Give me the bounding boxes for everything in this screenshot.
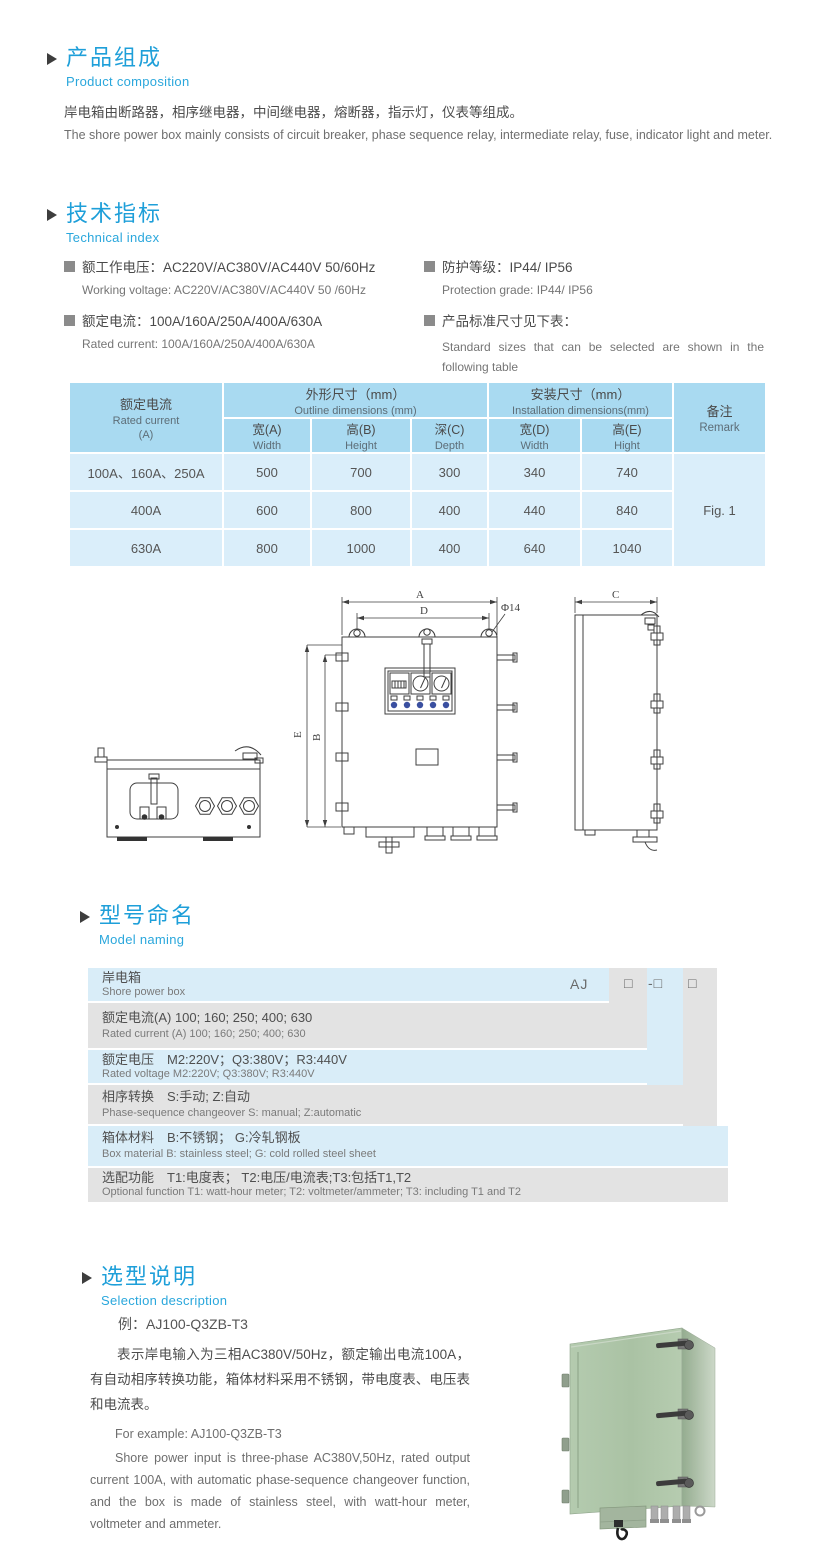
header-hight-e: 高(E)Hight bbox=[582, 419, 672, 452]
front-view bbox=[336, 629, 517, 853]
header-zh: 高(B) bbox=[312, 419, 410, 438]
side-view bbox=[575, 611, 663, 850]
bullet-square-icon bbox=[64, 261, 75, 272]
cell: 1040 bbox=[582, 530, 672, 566]
model-row-rated-current: 额定电流(A) 100; 160; 250; 400; 630 Rated cu… bbox=[88, 1003, 647, 1048]
header-en: Width bbox=[489, 440, 580, 452]
header-installation-dimensions: 安装尺寸（mm） Installation dimensions(mm) bbox=[489, 383, 672, 417]
table-row: 100A、160A、250A 500 700 300 340 740 Fig. … bbox=[70, 454, 765, 490]
header-en: Installation dimensions(mm) bbox=[489, 405, 672, 417]
header-zh: 安装尺寸（mm） bbox=[489, 384, 672, 403]
product-photo bbox=[545, 1292, 825, 1562]
header-en: Remark bbox=[674, 422, 765, 434]
standard-sizes-table: 额定电流 Rated current (A) 外形尺寸（mm） Outline … bbox=[68, 381, 767, 568]
datasheet-page: 产品组成 Product composition 岸电箱由断路器，相序继电器，中… bbox=[0, 0, 830, 1568]
cell: 600 bbox=[224, 492, 310, 528]
cell: 800 bbox=[224, 530, 310, 566]
cell: 300 bbox=[412, 454, 487, 490]
header-depth-c: 深(C)Depth bbox=[412, 419, 487, 452]
cell: 740 bbox=[582, 454, 672, 490]
section-technical-header: 技术指标 Technical index bbox=[47, 201, 162, 245]
dim-label-c: C bbox=[612, 589, 619, 601]
cell: 640 bbox=[489, 530, 580, 566]
composition-body-en: The shore power box mainly consists of c… bbox=[64, 128, 772, 142]
dim-label-e: E bbox=[292, 731, 304, 738]
model-code-prefix: AJ bbox=[570, 976, 588, 992]
model-row-optional-function: 选配功能 T1:电度表； T2:电压/电流表;T3:包括T1,T2 Option… bbox=[88, 1168, 728, 1202]
cell: 700 bbox=[312, 454, 410, 490]
row-en: Optional function T1: watt-hour meter; T… bbox=[88, 1186, 728, 1199]
row-en: Phase-sequence changeover S: manual; Z:a… bbox=[88, 1105, 717, 1120]
selection-text-block: 例：AJ100-Q3ZB-T3 表示岸电输入为三相AC380V/50Hz，额定输… bbox=[90, 1314, 470, 1535]
model-naming-diagram: 岸电箱 Shore power box 额定电流(A) 100; 160; 25… bbox=[88, 968, 728, 1204]
header-outline-dimensions: 外形尺寸（mm） Outline dimensions (mm) bbox=[224, 383, 487, 417]
selection-body-zh: 表示岸电输入为三相AC380V/50Hz，额定输出电流100A，有自动相序转换功… bbox=[90, 1342, 470, 1417]
header-en: Width bbox=[224, 440, 310, 452]
model-naming-title-en: Model naming bbox=[99, 932, 195, 947]
row-en: Box material B: stainless steel; G: cold… bbox=[88, 1146, 728, 1161]
model-code-current-box: □ bbox=[624, 975, 633, 991]
cell: 630A bbox=[70, 530, 222, 566]
row-en: Shore power box bbox=[88, 986, 609, 999]
section-arrow-icon bbox=[47, 53, 57, 65]
cell: 400 bbox=[412, 492, 487, 528]
spec-item: 额工作电压：AC220V/AC380V/AC440V 50/60Hz bbox=[64, 256, 375, 283]
section-composition-header: 产品组成 Product composition bbox=[47, 45, 189, 89]
header-en: Height bbox=[312, 440, 410, 452]
row-en: Rated voltage M2:220V; Q3:380V; R3:440V bbox=[88, 1068, 683, 1081]
spec-zh-text: 防护等级：IP44/ IP56 bbox=[442, 260, 573, 275]
header-en: Depth bbox=[412, 440, 487, 452]
composition-body-zh: 岸电箱由断路器，相序继电器，中间继电器，熔断器，指示灯，仪表等组成。 bbox=[64, 101, 523, 121]
model-code-option-box: □ bbox=[688, 975, 697, 991]
technical-title-en: Technical index bbox=[66, 230, 162, 245]
header-en: Rated current bbox=[70, 415, 222, 427]
row-zh: 箱体材料 B:不锈钢； G:冷轧钢板 bbox=[88, 1126, 728, 1146]
selection-example-zh: 例：AJ100-Q3ZB-T3 bbox=[90, 1314, 470, 1334]
table-row: 630A 800 1000 400 640 1040 bbox=[70, 530, 765, 566]
selection-example-en: For example: AJ100-Q3ZB-T3 bbox=[90, 1427, 470, 1441]
cell: 400A bbox=[70, 492, 222, 528]
selection-title-en: Selection description bbox=[101, 1293, 227, 1308]
spec-zh-text: 额工作电压：AC220V/AC380V/AC440V 50/60Hz bbox=[82, 260, 375, 275]
cell: 800 bbox=[312, 492, 410, 528]
header-zh: 备注 bbox=[674, 401, 765, 420]
model-code-voltage-box: -□ bbox=[648, 975, 663, 991]
header-zh: 外形尺寸（mm） bbox=[224, 384, 487, 403]
dim-label-b: B bbox=[311, 734, 323, 741]
dim-label-d: D bbox=[420, 605, 428, 617]
selection-title-zh: 选型说明 bbox=[101, 1264, 227, 1290]
cell: 840 bbox=[582, 492, 672, 528]
section-technical-titles: 技术指标 Technical index bbox=[66, 201, 162, 245]
cell: 100A、160A、250A bbox=[70, 454, 222, 490]
indicator-lights bbox=[391, 696, 449, 708]
dimension-lines: A D Φ14 E B C bbox=[292, 589, 657, 827]
spec-item: 产品标准尺寸见下表： bbox=[424, 310, 764, 337]
header-height-b: 高(B)Height bbox=[312, 419, 410, 452]
spec-en-text: Protection grade: IP44/ IP56 bbox=[424, 283, 764, 310]
spec-item: 额定电流：100A/160A/250A/400A/630A bbox=[64, 310, 375, 337]
row-zh: 额定电压 M2:220V；Q3:380V；R3:440V bbox=[88, 1050, 683, 1068]
technical-title-zh: 技术指标 bbox=[66, 201, 162, 227]
section-model-naming-header: 型号命名 Model naming bbox=[80, 903, 195, 947]
header-zh: 宽(A) bbox=[224, 419, 310, 438]
model-row-shore-power-box: 岸电箱 Shore power box bbox=[88, 968, 609, 1001]
section-composition-titles: 产品组成 Product composition bbox=[66, 45, 189, 89]
dim-label-dia14: Φ14 bbox=[501, 602, 521, 614]
selection-body-en: Shore power input is three-phase AC380V,… bbox=[90, 1447, 470, 1535]
header-width-a: 宽(A)Width bbox=[224, 419, 310, 452]
section-arrow-icon bbox=[82, 1272, 92, 1284]
spec-item: 防护等级：IP44/ IP56 bbox=[424, 256, 764, 283]
spec-en-text: Standard sizes that can be selected are … bbox=[424, 337, 764, 377]
cable-glands bbox=[650, 1506, 705, 1523]
model-row-box-material: 箱体材料 B:不锈钢； G:冷轧钢板 Box material B: stain… bbox=[88, 1126, 728, 1166]
header-remark: 备注 Remark bbox=[674, 383, 765, 452]
cell: 440 bbox=[489, 492, 580, 528]
header-unit: (A) bbox=[70, 429, 222, 441]
header-zh: 深(C) bbox=[412, 419, 487, 438]
row-zh: 相序转换 S:手动; Z:自动 bbox=[88, 1085, 717, 1105]
cell: 500 bbox=[224, 454, 310, 490]
spec-zh-text: 产品标准尺寸见下表： bbox=[442, 314, 577, 329]
cell-remark: Fig. 1 bbox=[674, 454, 765, 566]
composition-title-en: Product composition bbox=[66, 74, 189, 89]
section-arrow-icon bbox=[47, 209, 57, 221]
technical-specs-left: 额工作电压：AC220V/AC380V/AC440V 50/60Hz Worki… bbox=[64, 256, 375, 364]
table-group-header-row: 额定电流 Rated current (A) 外形尺寸（mm） Outline … bbox=[70, 383, 765, 417]
model-row-rated-voltage: 额定电压 M2:220V；Q3:380V；R3:440V Rated volta… bbox=[88, 1050, 683, 1083]
header-en: Outline dimensions (mm) bbox=[224, 405, 487, 417]
bottom-view bbox=[95, 747, 263, 841]
row-en: Rated current (A) 100; 160; 250; 400; 63… bbox=[88, 1026, 647, 1041]
cell: 400 bbox=[412, 530, 487, 566]
bottom-hook bbox=[614, 1520, 623, 1527]
spec-en-text: Rated current: 100A/160A/250A/400A/630A bbox=[64, 337, 375, 364]
spec-en-text: Working voltage: AC220V/AC380V/AC440V 50… bbox=[64, 283, 375, 310]
row-zh: 选配功能 T1:电度表； T2:电压/电流表;T3:包括T1,T2 bbox=[88, 1168, 728, 1186]
bullet-square-icon bbox=[424, 261, 435, 272]
cell: 1000 bbox=[312, 530, 410, 566]
bullet-square-icon bbox=[64, 315, 75, 326]
bullet-square-icon bbox=[424, 315, 435, 326]
enclosure-box bbox=[562, 1328, 715, 1539]
header-width-d: 宽(D)Width bbox=[489, 419, 580, 452]
table-row: 400A 600 800 400 440 840 bbox=[70, 492, 765, 528]
header-zh: 宽(D) bbox=[489, 419, 580, 438]
composition-title-zh: 产品组成 bbox=[66, 45, 189, 71]
header-zh: 高(E) bbox=[582, 419, 672, 438]
section-arrow-icon bbox=[80, 911, 90, 923]
model-naming-title-zh: 型号命名 bbox=[99, 903, 195, 929]
header-zh: 额定电流 bbox=[70, 394, 222, 413]
header-rated-current: 额定电流 Rated current (A) bbox=[70, 383, 222, 452]
spec-zh-text: 额定电流：100A/160A/250A/400A/630A bbox=[82, 314, 322, 329]
row-zh: 额定电流(A) 100; 160; 250; 400; 630 bbox=[88, 1003, 647, 1026]
header-en: Hight bbox=[582, 440, 672, 452]
technical-drawing: A D Φ14 E B C bbox=[85, 585, 765, 887]
section-selection-header: 选型说明 Selection description bbox=[82, 1264, 227, 1308]
row-zh: 岸电箱 bbox=[88, 968, 609, 986]
technical-specs-right: 防护等级：IP44/ IP56 Protection grade: IP44/ … bbox=[424, 256, 764, 377]
section-model-naming-titles: 型号命名 Model naming bbox=[99, 903, 195, 947]
section-selection-titles: 选型说明 Selection description bbox=[101, 1264, 227, 1308]
model-row-phase-sequence: 相序转换 S:手动; Z:自动 Phase-sequence changeove… bbox=[88, 1085, 717, 1124]
cell: 340 bbox=[489, 454, 580, 490]
dim-label-a: A bbox=[416, 589, 424, 601]
meter-panel bbox=[385, 668, 455, 714]
